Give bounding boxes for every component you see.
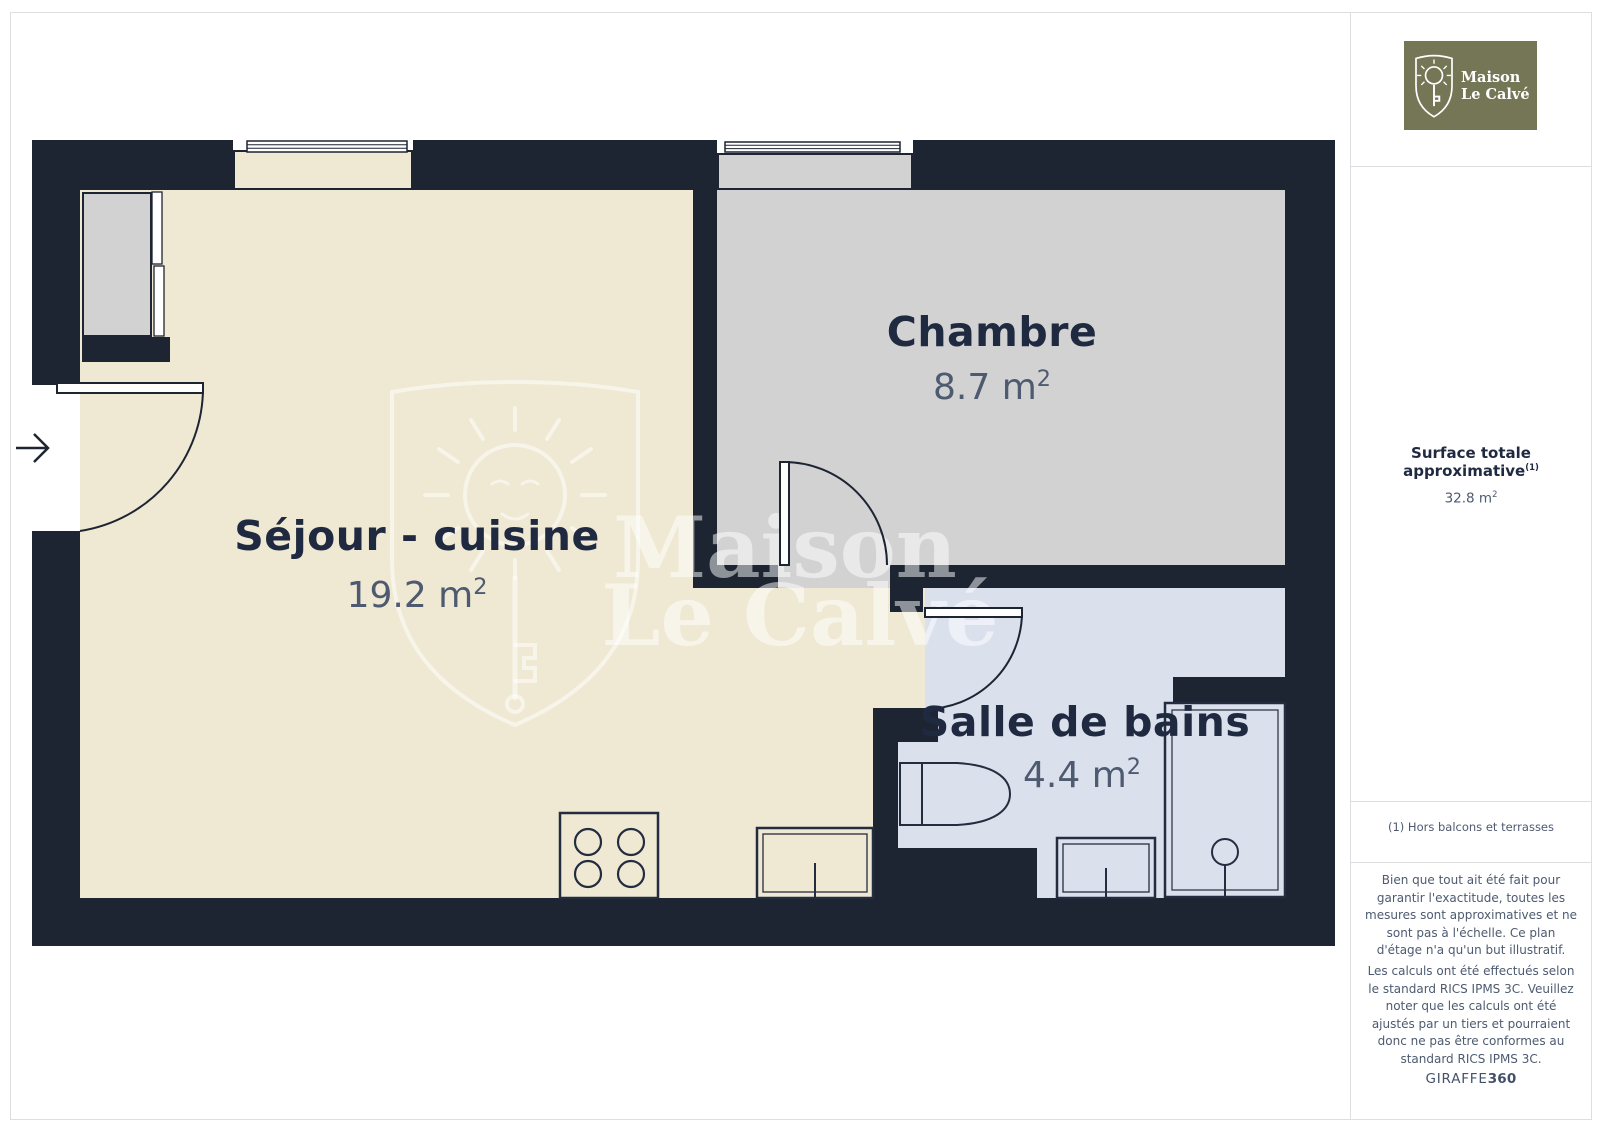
agency-logo-shield-icon: [1411, 50, 1457, 122]
agency-logo-line2: Le Calvé: [1461, 86, 1530, 103]
agency-logo-line1: Maison: [1461, 69, 1530, 86]
room-area-bains-value: 4.4 m: [1023, 755, 1127, 796]
giraffe360-bold: 360: [1488, 1071, 1517, 1087]
sidebar-divider: [1350, 12, 1351, 1119]
giraffe360-regular: GIRAFFE: [1426, 1071, 1488, 1087]
surface-total-value-text: 32.8 m: [1445, 491, 1493, 507]
room-name-sejour: Séjour - cuisine: [234, 512, 600, 560]
room-area-sejour-value: 19.2 m: [347, 575, 474, 616]
chambre-window: [725, 142, 900, 152]
disclaimer-2: Les calculs ont été effectués selon le s…: [1363, 963, 1579, 1068]
room-area-chambre-sup: 2: [1037, 366, 1051, 392]
watermark-key: [507, 578, 535, 712]
room-area-bains-wrap: 4.4 m2: [1023, 754, 1141, 796]
room-label-sejour: Séjour - cuisine: [234, 512, 600, 560]
room-name-bains: Salle de bains: [920, 698, 1250, 746]
surface-total-title-text: Surface totale approximative: [1403, 444, 1531, 480]
sidebar-rule-3: [1351, 862, 1592, 863]
floor-plan: Maison Le Calvé: [32, 140, 1335, 946]
disclaimer-1: Bien que tout ait été fait pour garantir…: [1363, 872, 1579, 960]
stove: [560, 813, 658, 898]
room-area-bains-sup: 2: [1127, 754, 1141, 780]
room-area-chambre-value: 8.7 m: [933, 367, 1037, 408]
plan-symbols-layer: Maison Le Calvé: [32, 140, 1335, 946]
room-area-sejour-sup: 2: [473, 574, 487, 600]
toilet: [900, 763, 1010, 825]
surface-total-value: 32.8 m2: [1350, 489, 1592, 507]
surface-total-title-sup: (1): [1525, 463, 1539, 473]
room-area-chambre-wrap: 8.7 m2: [933, 366, 1051, 408]
room-label-bains: Salle de bains: [920, 698, 1250, 746]
watermark-text: Maison Le Calvé: [601, 498, 998, 665]
entrance-door: [57, 383, 203, 531]
sidebar-rule-1: [1351, 166, 1592, 167]
room-name-chambre: Chambre: [887, 308, 1098, 356]
giraffe360-brand: GIRAFFE360: [1350, 1071, 1592, 1087]
floorplan-page: { "branding": { "logo_line1": "Maison", …: [0, 0, 1600, 1131]
kitchen-sink: [757, 828, 873, 898]
footnote: (1) Hors balcons et terrasses: [1350, 820, 1592, 834]
agency-logo-text: Maison Le Calvé: [1461, 69, 1530, 103]
sejour-window: [247, 141, 407, 152]
room-area-bains: 4.4 m2: [1023, 754, 1141, 796]
room-area-sejour: 19.2 m2: [347, 574, 488, 616]
closet-sliding-doors: [152, 192, 164, 336]
sidebar-rule-2: [1351, 801, 1592, 802]
surface-total-value-sup: 2: [1492, 489, 1497, 499]
room-area-chambre: 8.7 m2: [933, 366, 1051, 408]
room-area-sejour-wrap: 19.2 m2: [347, 574, 488, 616]
surface-total-title: Surface totale approximative(1): [1350, 444, 1592, 480]
room-label-chambre: Chambre: [887, 308, 1098, 356]
surface-total-block: Surface totale approximative(1) 32.8 m2: [1350, 444, 1592, 507]
agency-logo: Maison Le Calvé: [1404, 41, 1537, 130]
washbasin: [1057, 838, 1155, 898]
